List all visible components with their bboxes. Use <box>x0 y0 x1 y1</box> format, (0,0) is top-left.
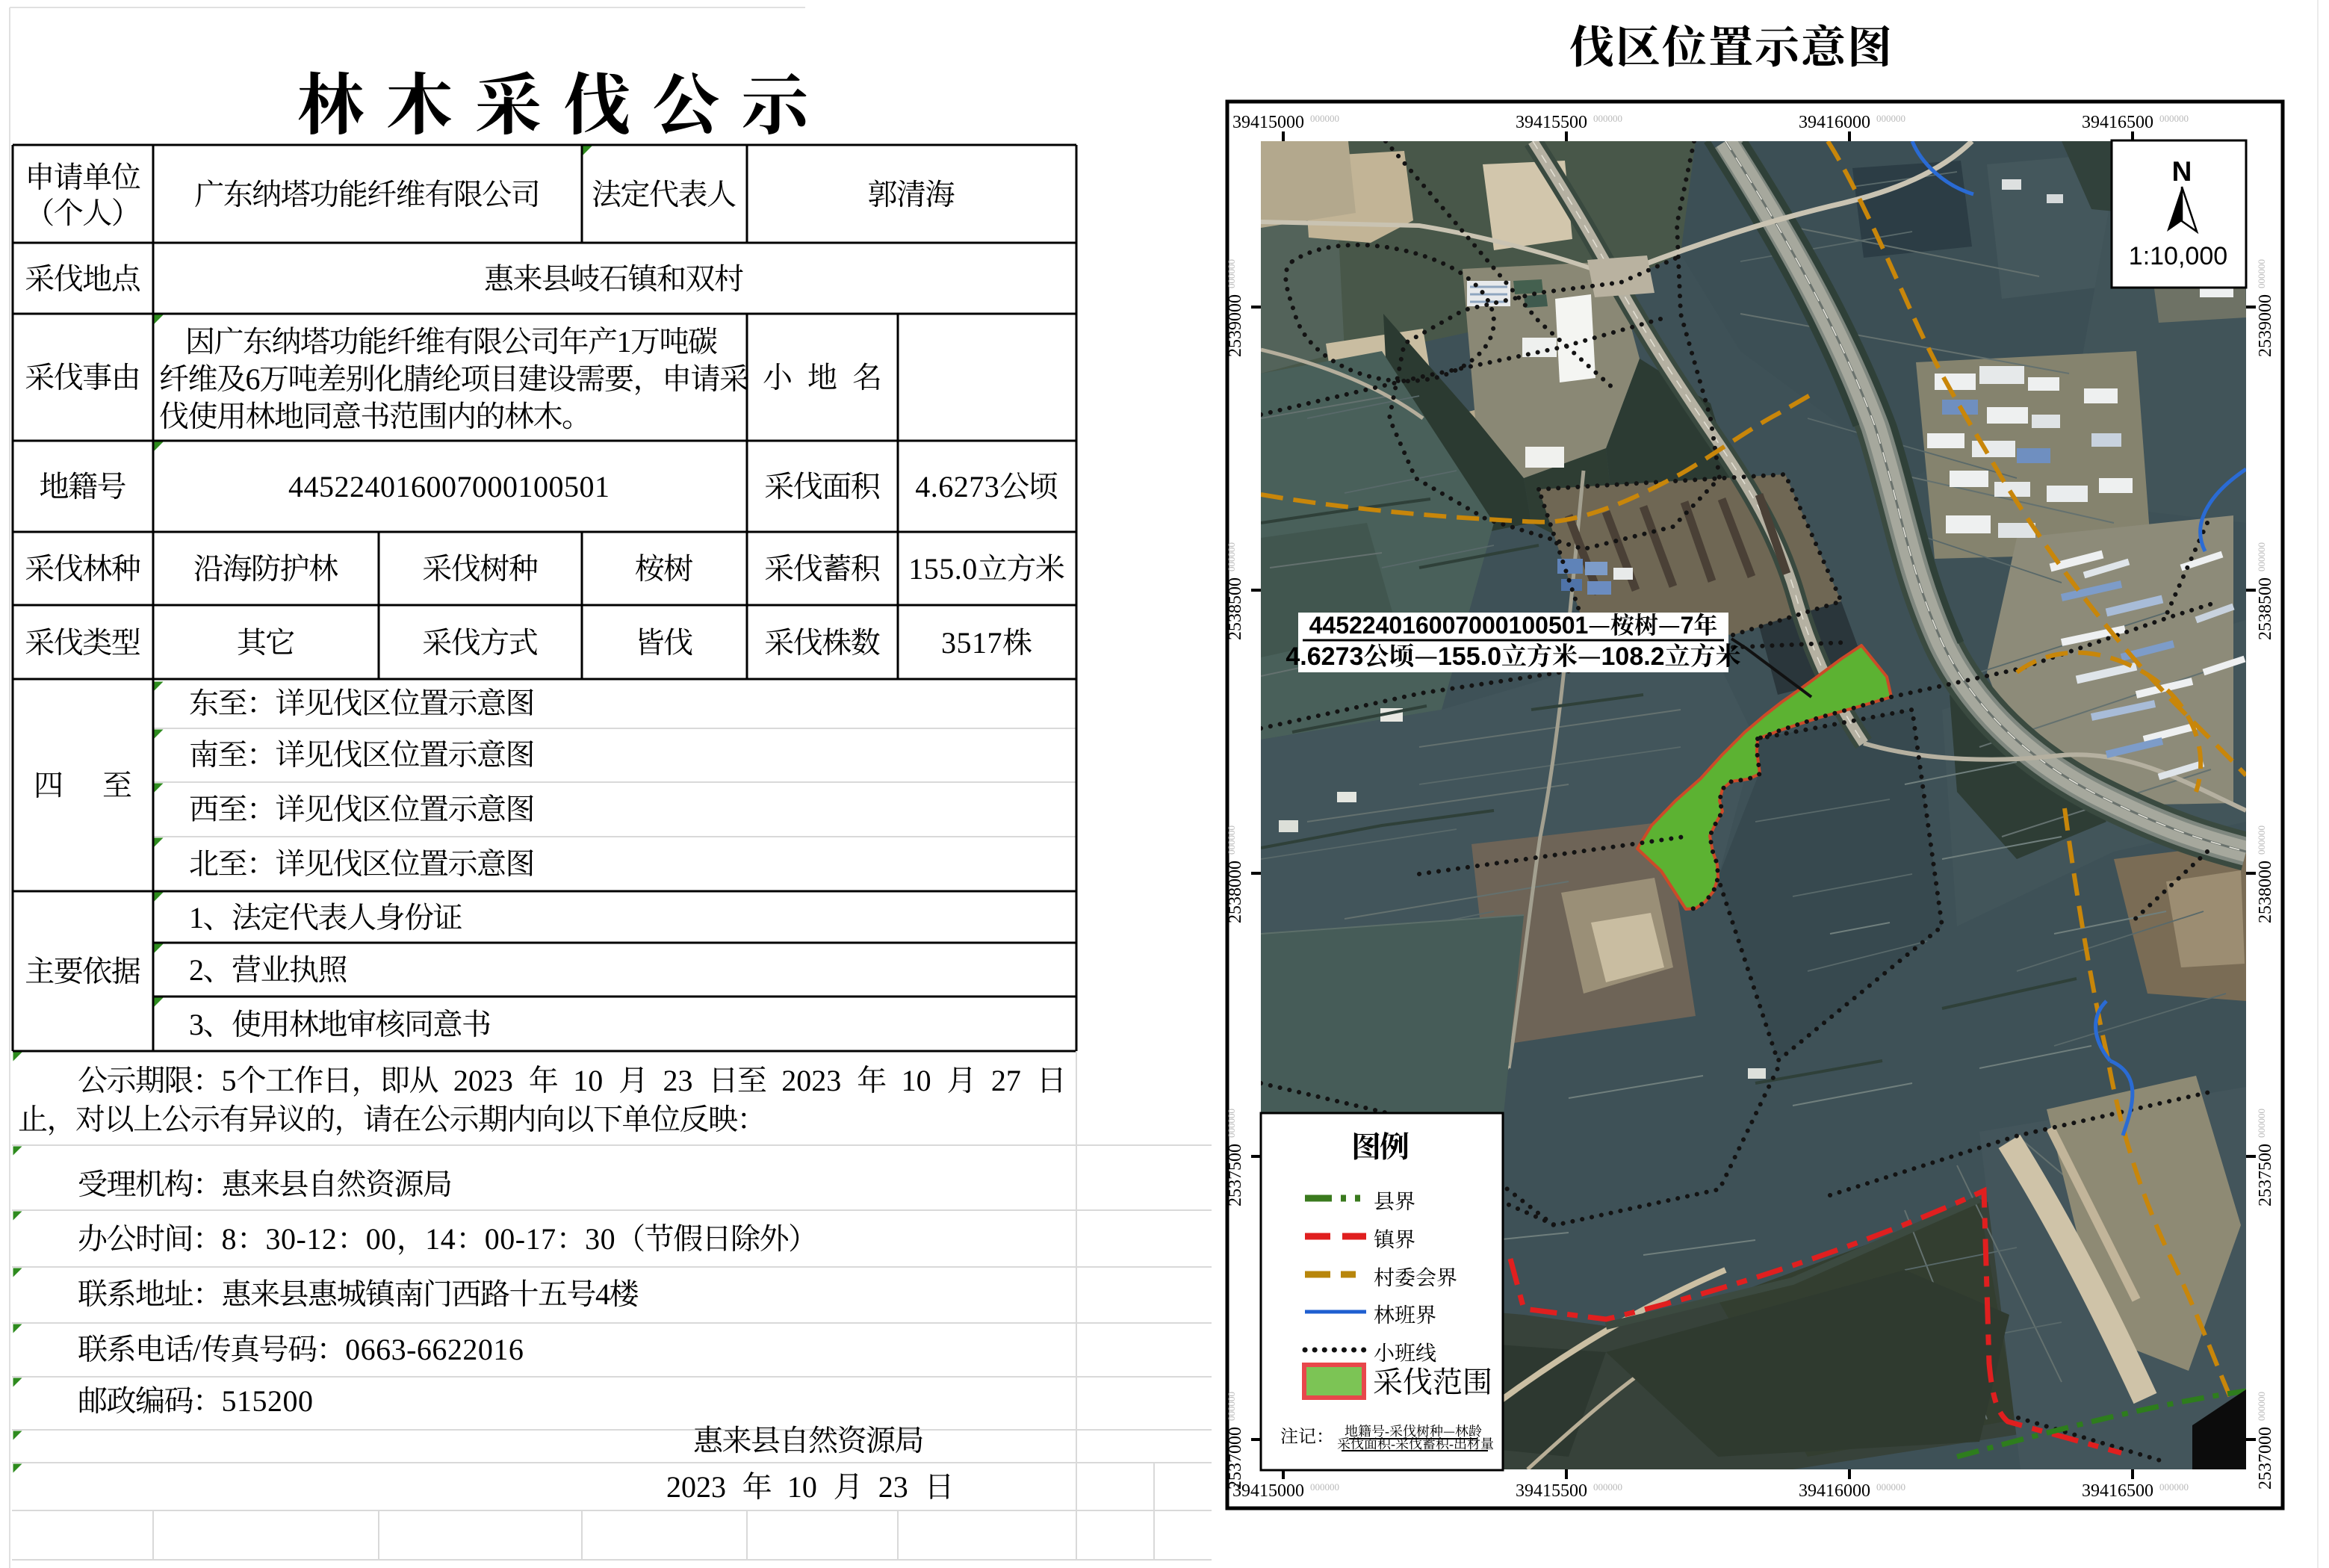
svg-text:00: 00 <box>366 1222 397 1256</box>
svg-text:515200: 515200 <box>222 1384 314 1418</box>
svg-text:27: 27 <box>991 1064 1021 1097</box>
svg-text:000000: 000000 <box>2256 542 2267 571</box>
svg-text:000000: 000000 <box>2256 825 2267 855</box>
svg-text:2538500: 2538500 <box>1226 577 1245 640</box>
svg-text:2539000: 2539000 <box>2256 294 2275 357</box>
svg-text:445224016007000100501: 445224016007000100501 <box>1309 612 1589 639</box>
svg-text:N: N <box>2172 156 2192 187</box>
svg-text:39416500: 39416500 <box>2082 113 2153 132</box>
svg-text:1:10,000: 1:10,000 <box>2129 242 2227 270</box>
svg-text:000000: 000000 <box>1876 1481 1905 1493</box>
svg-text:10: 10 <box>573 1064 603 1097</box>
svg-text:23: 23 <box>878 1470 908 1504</box>
svg-text:1: 1 <box>617 325 631 359</box>
svg-text:39415000: 39415000 <box>1232 113 1304 132</box>
svg-text:4.6273: 4.6273 <box>915 470 999 503</box>
svg-text:155.0: 155.0 <box>1438 642 1501 671</box>
svg-text:000000: 000000 <box>2256 1392 2267 1421</box>
svg-text:30: 30 <box>585 1222 615 1256</box>
svg-text:2537500: 2537500 <box>1226 1144 1245 1206</box>
svg-text:0663-6622016: 0663-6622016 <box>345 1333 524 1366</box>
svg-text:000000: 000000 <box>1876 113 1905 124</box>
svg-text:39416000: 39416000 <box>1799 1481 1870 1501</box>
svg-text:10: 10 <box>787 1470 817 1504</box>
svg-text:39415500: 39415500 <box>1516 113 1587 132</box>
svg-text:00-17: 00-17 <box>485 1222 556 1256</box>
svg-text:23: 23 <box>663 1064 693 1097</box>
svg-text:3517: 3517 <box>941 626 1002 660</box>
svg-text:2537000: 2537000 <box>2256 1427 2275 1490</box>
svg-text:155.0: 155.0 <box>908 552 978 586</box>
svg-text:000000: 000000 <box>1226 259 1237 288</box>
svg-text:2538000: 2538000 <box>2256 861 2275 923</box>
svg-text:000000: 000000 <box>2159 113 2189 124</box>
svg-text:30-12: 30-12 <box>266 1222 338 1256</box>
svg-text:2023: 2023 <box>781 1064 841 1097</box>
svg-text:14: 14 <box>425 1222 456 1256</box>
svg-text:2537500: 2537500 <box>2256 1144 2275 1206</box>
svg-text:000000: 000000 <box>1226 825 1237 855</box>
svg-text:2023: 2023 <box>453 1064 513 1097</box>
svg-text:000000: 000000 <box>1310 113 1339 124</box>
svg-text:2023: 2023 <box>666 1470 726 1504</box>
svg-text:000000: 000000 <box>1310 1481 1339 1493</box>
svg-text:2537000: 2537000 <box>1226 1427 1245 1490</box>
svg-text:7: 7 <box>1681 612 1694 639</box>
svg-text:5: 5 <box>222 1064 237 1097</box>
svg-text:445224016007000100501: 445224016007000100501 <box>288 470 610 503</box>
svg-text:000000: 000000 <box>1593 1481 1622 1493</box>
svg-text:8: 8 <box>222 1222 238 1256</box>
svg-text:2538500: 2538500 <box>2256 577 2275 640</box>
svg-text:000000: 000000 <box>1226 1109 1237 1138</box>
svg-text:2539000: 2539000 <box>1226 294 1245 357</box>
svg-text:000000: 000000 <box>1593 113 1622 124</box>
svg-text:39416500: 39416500 <box>2082 1481 2153 1501</box>
svg-text:6: 6 <box>246 362 260 396</box>
svg-text:4.6273: 4.6273 <box>1286 642 1363 671</box>
svg-text:-: - <box>1449 1437 1454 1451</box>
svg-text:1: 1 <box>189 901 203 935</box>
svg-text:2538000: 2538000 <box>1226 861 1245 923</box>
svg-text:/: / <box>193 1333 202 1366</box>
svg-text:4: 4 <box>595 1277 610 1311</box>
svg-text:000000: 000000 <box>2159 1481 2189 1493</box>
svg-text:000000: 000000 <box>2256 1109 2267 1138</box>
svg-text:108.2: 108.2 <box>1601 642 1665 671</box>
svg-text:000000: 000000 <box>2256 259 2267 288</box>
svg-text:2: 2 <box>189 953 203 987</box>
svg-text:000000: 000000 <box>1226 1392 1237 1421</box>
svg-text:39416000: 39416000 <box>1799 113 1870 132</box>
svg-text:-: - <box>1385 1424 1389 1439</box>
svg-text:-: - <box>1391 1437 1395 1451</box>
svg-text:39415500: 39415500 <box>1516 1481 1587 1501</box>
svg-text:10: 10 <box>902 1064 931 1097</box>
svg-text:000000: 000000 <box>1226 542 1237 571</box>
svg-text:3: 3 <box>189 1008 203 1041</box>
